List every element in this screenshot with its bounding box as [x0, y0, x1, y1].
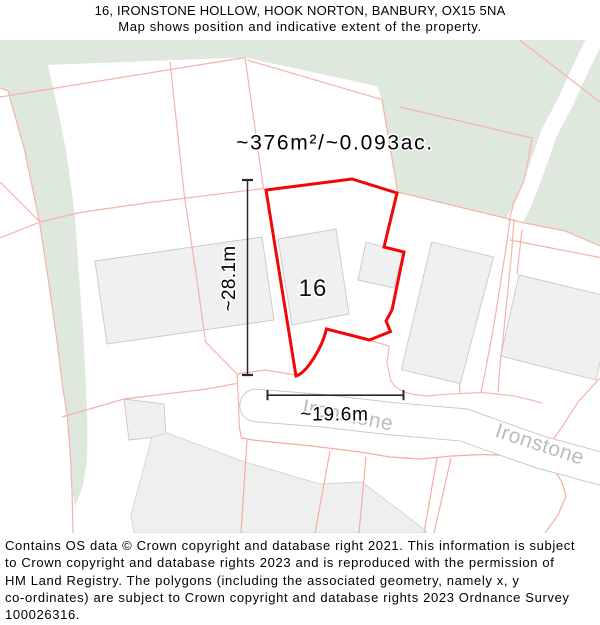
svg-text:~19.6m: ~19.6m [300, 405, 368, 426]
svg-text:~28.1m: ~28.1m [219, 246, 240, 312]
svg-text:16: 16 [299, 275, 328, 302]
svg-text:~376m²/~0.093ac.: ~376m²/~0.093ac. [236, 132, 434, 155]
